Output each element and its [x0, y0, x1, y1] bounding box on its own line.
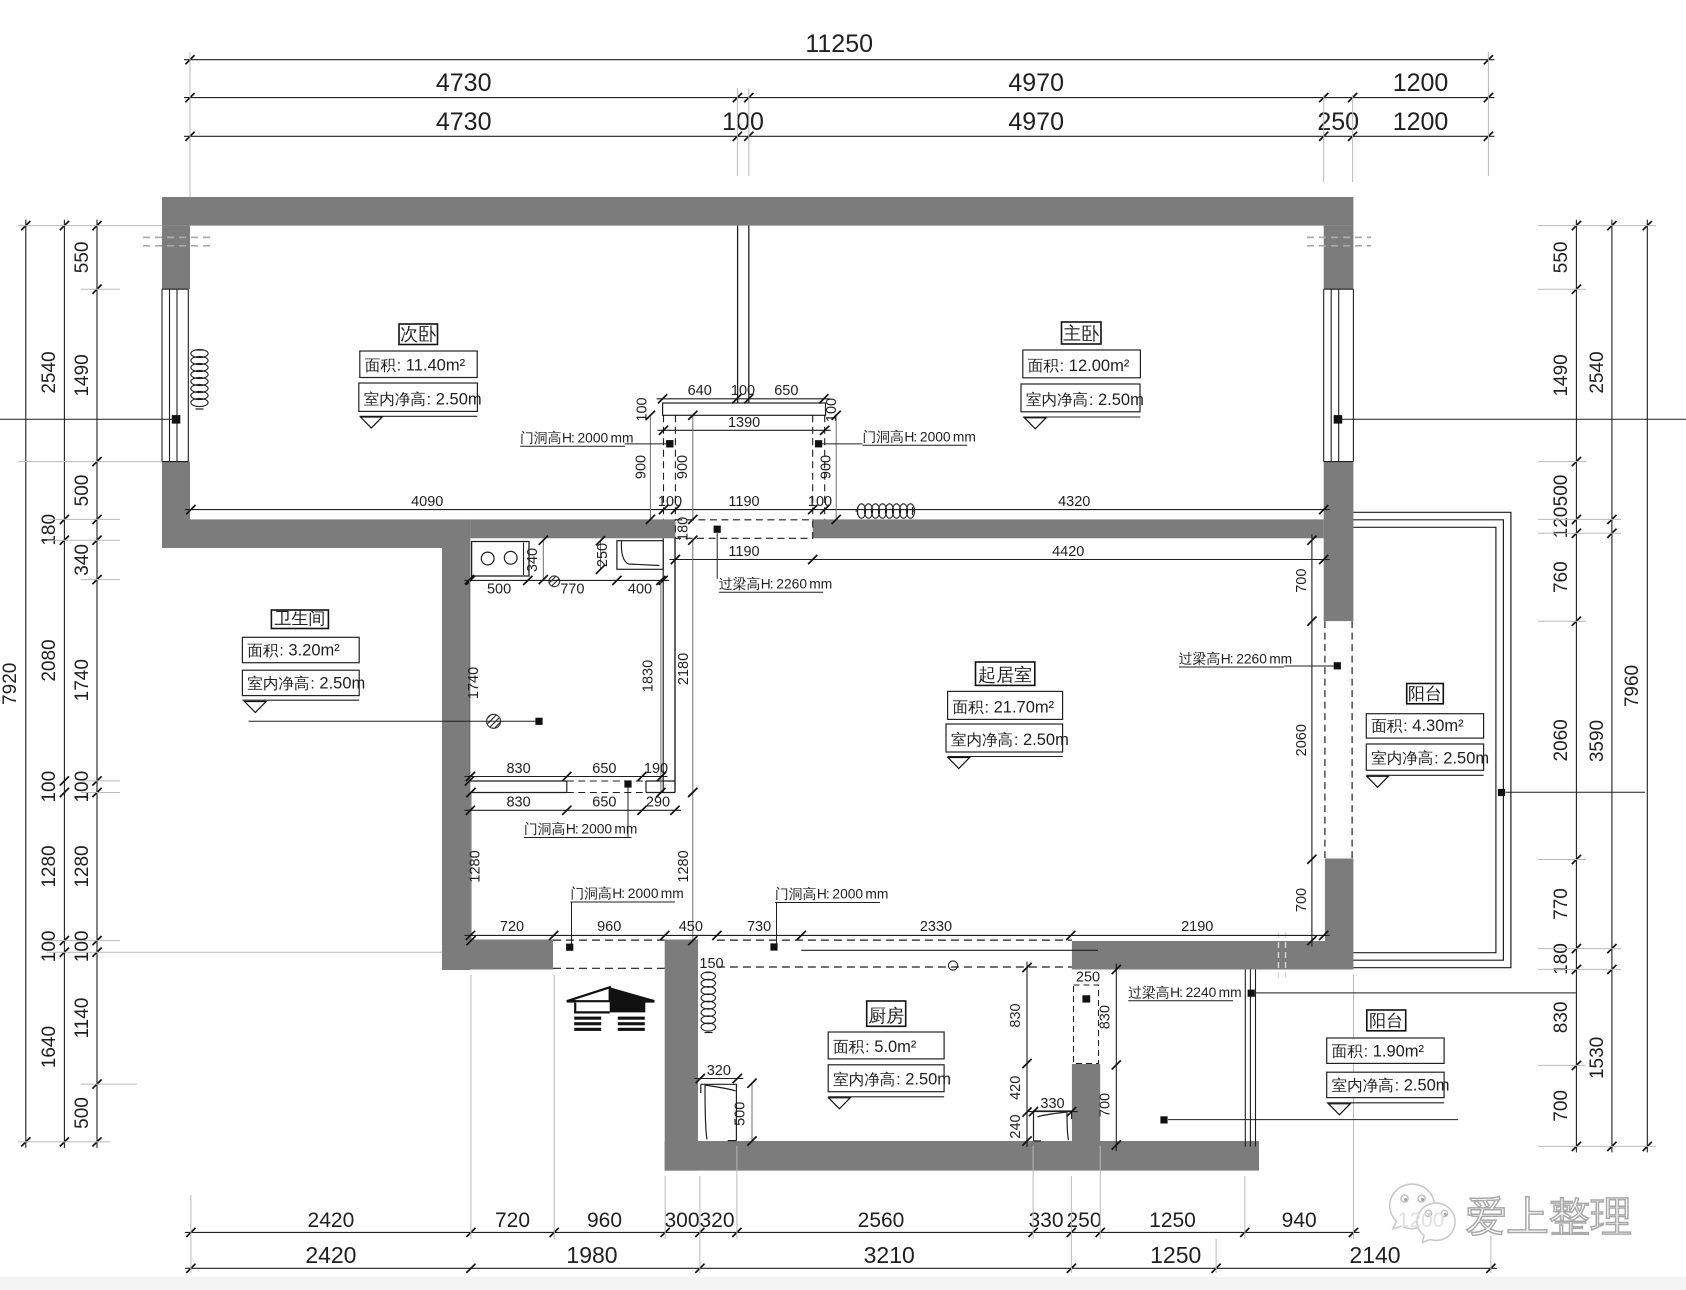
svg-text:2060: 2060 — [1294, 724, 1310, 756]
svg-text:1.90m²: 1.90m² — [1373, 1042, 1425, 1060]
svg-text:2540: 2540 — [39, 351, 60, 393]
svg-text::: : — [865, 1039, 869, 1056]
svg-text:2.50m: 2.50m — [436, 390, 482, 408]
svg-text:4.30m²: 4.30m² — [1412, 717, 1464, 735]
svg-text:1640: 1640 — [39, 1026, 60, 1068]
svg-text:940: 940 — [1282, 1209, 1317, 1232]
svg-text:340: 340 — [525, 548, 541, 572]
svg-text:450: 450 — [679, 919, 703, 935]
svg-text:1490: 1490 — [1551, 354, 1572, 396]
svg-text:2.50m: 2.50m — [1443, 749, 1489, 767]
svg-text:mm: mm — [1269, 651, 1292, 666]
svg-text::: : — [1364, 1043, 1368, 1060]
svg-text:2540: 2540 — [1587, 351, 1608, 393]
svg-text:2420: 2420 — [308, 1209, 355, 1232]
svg-text:720: 720 — [500, 919, 524, 935]
svg-text:2.50m: 2.50m — [1098, 391, 1144, 409]
svg-text:3590: 3590 — [1587, 720, 1608, 762]
svg-text:2000: 2000 — [628, 886, 659, 901]
svg-text::: : — [826, 887, 830, 902]
svg-text:760: 760 — [1551, 561, 1572, 593]
svg-text:4320: 4320 — [1058, 494, 1090, 510]
svg-text:700: 700 — [1551, 1090, 1572, 1122]
svg-text:730: 730 — [747, 919, 771, 935]
svg-text:240: 240 — [1008, 1114, 1024, 1138]
svg-text:2190: 2190 — [1181, 919, 1213, 935]
svg-text:2260: 2260 — [1236, 651, 1267, 666]
svg-text:100: 100 — [658, 494, 682, 510]
svg-text::: : — [310, 676, 314, 693]
svg-text:7920: 7920 — [0, 663, 21, 705]
svg-text:1250: 1250 — [1150, 1242, 1201, 1268]
svg-text:5.0m²: 5.0m² — [874, 1038, 917, 1056]
svg-text:4730: 4730 — [436, 69, 492, 97]
svg-text:2000: 2000 — [581, 822, 612, 837]
svg-text:830: 830 — [1008, 1003, 1024, 1027]
svg-text:830: 830 — [506, 761, 530, 777]
svg-text:2060: 2060 — [1551, 719, 1572, 761]
svg-text:3210: 3210 — [864, 1242, 915, 1268]
svg-text:mm: mm — [1219, 985, 1242, 1000]
svg-text:1280: 1280 — [72, 845, 93, 887]
svg-text:100: 100 — [731, 383, 755, 399]
svg-text:180: 180 — [39, 514, 60, 546]
svg-text:1280: 1280 — [676, 850, 692, 882]
svg-text:2.50m: 2.50m — [319, 675, 365, 693]
svg-text:2.50m: 2.50m — [1023, 731, 1069, 749]
svg-text:100: 100 — [722, 108, 764, 136]
svg-text:4420: 4420 — [1052, 544, 1084, 560]
svg-text:7960: 7960 — [1622, 665, 1643, 707]
svg-text::: : — [1060, 358, 1064, 375]
svg-text:500: 500 — [1551, 475, 1572, 507]
svg-text:2080: 2080 — [39, 639, 60, 681]
svg-text:340: 340 — [72, 544, 93, 576]
svg-text:500: 500 — [72, 1097, 93, 1129]
svg-text::: : — [1179, 985, 1183, 1000]
svg-text:100: 100 — [824, 398, 840, 422]
svg-text:11250: 11250 — [805, 30, 873, 58]
svg-text:250: 250 — [595, 543, 611, 567]
svg-text:mm: mm — [953, 429, 976, 444]
svg-text:320: 320 — [707, 1063, 731, 1079]
svg-text:1390: 1390 — [728, 415, 760, 431]
svg-text:2000: 2000 — [832, 887, 863, 902]
svg-text:100: 100 — [72, 931, 93, 963]
svg-text:100: 100 — [39, 931, 60, 963]
svg-text:2.50m: 2.50m — [1404, 1077, 1450, 1095]
svg-text:4090: 4090 — [411, 494, 443, 510]
svg-text:550: 550 — [72, 242, 93, 274]
svg-text:mm: mm — [661, 886, 684, 901]
svg-text::: : — [571, 430, 575, 445]
svg-text:1830: 1830 — [640, 660, 656, 692]
svg-text:1200: 1200 — [1398, 1209, 1445, 1232]
svg-text:500: 500 — [487, 582, 511, 598]
svg-text:11.40m²: 11.40m² — [406, 357, 466, 375]
svg-text:400: 400 — [628, 582, 652, 598]
svg-text:4970: 4970 — [1008, 108, 1064, 136]
svg-text:960: 960 — [587, 1209, 622, 1232]
svg-text:100: 100 — [808, 494, 832, 510]
svg-text:1200: 1200 — [1393, 108, 1449, 136]
svg-text:650: 650 — [592, 795, 616, 811]
svg-text:mm: mm — [865, 887, 888, 902]
svg-text:2140: 2140 — [1349, 1242, 1400, 1268]
svg-text:mm: mm — [611, 430, 634, 445]
svg-text:12.00m²: 12.00m² — [1069, 357, 1130, 375]
svg-text:330: 330 — [1028, 1209, 1063, 1232]
svg-text::: : — [1230, 651, 1234, 666]
svg-text:1980: 1980 — [566, 1242, 617, 1268]
svg-text::: : — [279, 643, 283, 660]
svg-text:960: 960 — [597, 919, 621, 935]
svg-text:180: 180 — [1551, 943, 1572, 975]
svg-text:700: 700 — [1294, 888, 1310, 912]
svg-text:mm: mm — [809, 577, 832, 592]
svg-text:190: 190 — [644, 761, 668, 777]
svg-text:830: 830 — [1098, 1005, 1114, 1029]
svg-text::: : — [1395, 1078, 1399, 1095]
svg-text:500: 500 — [72, 475, 93, 507]
svg-text:290: 290 — [646, 795, 670, 811]
svg-text:320: 320 — [699, 1209, 734, 1232]
svg-text:mm: mm — [614, 822, 637, 837]
svg-text:2260: 2260 — [776, 577, 807, 592]
svg-text::: : — [985, 699, 989, 716]
svg-text:300: 300 — [664, 1209, 699, 1232]
svg-text:900: 900 — [819, 455, 835, 479]
svg-text:21.70m²: 21.70m² — [994, 698, 1055, 716]
svg-text:1740: 1740 — [466, 667, 482, 699]
svg-text::: : — [1014, 732, 1018, 749]
svg-text:770: 770 — [1551, 888, 1572, 920]
svg-text:180: 180 — [676, 517, 692, 541]
svg-text:900: 900 — [633, 455, 649, 479]
svg-text:2000: 2000 — [920, 429, 951, 444]
svg-text:640: 640 — [688, 383, 712, 399]
svg-text:330: 330 — [1040, 1096, 1064, 1112]
svg-text::: : — [621, 886, 625, 901]
svg-text:3.20m²: 3.20m² — [288, 642, 340, 660]
svg-text:830: 830 — [1551, 1002, 1572, 1034]
svg-text:2000: 2000 — [578, 430, 609, 445]
svg-text::: : — [427, 391, 431, 408]
svg-text:100: 100 — [72, 771, 93, 803]
svg-text:100: 100 — [39, 771, 60, 803]
svg-text:650: 650 — [774, 383, 798, 399]
svg-text:830: 830 — [506, 795, 530, 811]
svg-text:1280: 1280 — [39, 845, 60, 887]
svg-text:2.50m: 2.50m — [905, 1071, 951, 1089]
svg-text:1190: 1190 — [728, 544, 759, 560]
svg-text:1530: 1530 — [1587, 1037, 1608, 1079]
svg-text:250: 250 — [1076, 970, 1100, 986]
svg-text:2420: 2420 — [305, 1242, 356, 1268]
svg-text:1200: 1200 — [1393, 69, 1449, 97]
svg-text:1140: 1140 — [72, 998, 93, 1039]
svg-text::: : — [1089, 392, 1093, 409]
svg-text:4730: 4730 — [436, 108, 492, 136]
svg-text:2180: 2180 — [676, 653, 692, 685]
svg-text:500: 500 — [733, 1102, 749, 1126]
svg-text::: : — [770, 577, 774, 592]
svg-text:150: 150 — [699, 956, 723, 972]
svg-text:1490: 1490 — [72, 354, 93, 396]
svg-text::: : — [397, 358, 401, 375]
svg-text::: : — [896, 1072, 900, 1089]
svg-text:4970: 4970 — [1008, 69, 1064, 97]
svg-text:1280: 1280 — [467, 850, 483, 882]
svg-text:770: 770 — [560, 582, 584, 598]
svg-text:700: 700 — [1294, 569, 1310, 593]
svg-text:2240: 2240 — [1186, 985, 1217, 1000]
svg-text:550: 550 — [1551, 242, 1572, 274]
svg-text:700: 700 — [1098, 1093, 1114, 1117]
svg-text:1740: 1740 — [72, 659, 93, 701]
svg-text::: : — [1403, 718, 1407, 735]
svg-text::: : — [1434, 750, 1438, 767]
svg-text::: : — [575, 822, 579, 837]
svg-text:1250: 1250 — [1149, 1209, 1196, 1232]
svg-text:650: 650 — [592, 761, 616, 777]
svg-text:2560: 2560 — [858, 1209, 905, 1232]
svg-text:1190: 1190 — [728, 494, 759, 510]
svg-text:2330: 2330 — [920, 919, 952, 935]
svg-text:720: 720 — [495, 1209, 530, 1232]
svg-text:900: 900 — [675, 455, 691, 479]
svg-text::: : — [913, 429, 917, 444]
svg-text:420: 420 — [1008, 1076, 1024, 1100]
